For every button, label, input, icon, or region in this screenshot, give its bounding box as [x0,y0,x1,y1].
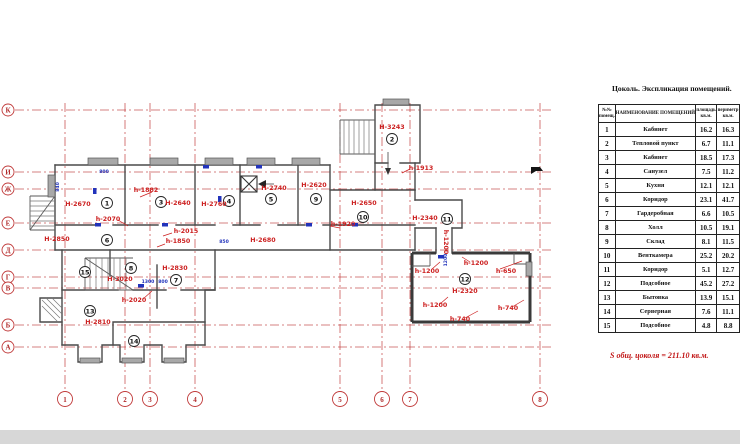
cell-a1: 6.6 [695,207,716,221]
cell-num: 6 [599,193,616,207]
table-row: 1Кабинет16.216.3 [599,123,740,137]
cell-a2: 10.5 [717,207,740,221]
table-row: 9Склад8.111.5 [599,235,740,249]
cell-a1: 13.9 [695,291,716,305]
grid-col-label: 4 [193,396,197,404]
height-label: h-1850 [166,238,191,245]
table-row: 12Подсобное45.227.2 [599,277,740,291]
height-label: h-1200 [464,260,489,267]
grid-row-label: И [5,168,11,176]
room-number: 9 [314,195,319,203]
total-area-note: S общ. цоколя = 211.10 кв.м. [610,351,709,360]
height-label: h-1913 [409,165,434,172]
cell-a2: 17.3 [717,151,740,165]
dimension-label: 850 [219,239,229,245]
height-label: h-1200 [423,302,448,309]
grid-row-label: Г [6,273,11,281]
cell-a1: 6.7 [695,137,716,151]
room-number: 11 [442,215,452,223]
cell-a1: 7.5 [695,165,716,179]
table-row: 8Холл10.519.1 [599,221,740,235]
room-number: 3 [159,198,164,206]
height-label: Н-2850 [44,236,70,243]
section-marker [531,167,543,174]
cell-a2: 11.5 [717,235,740,249]
cell-name: Подсобное [615,277,695,291]
cell-a1: 5.1 [695,263,716,277]
grid-row-label: В [6,284,11,292]
walls-stair-tower [340,105,420,190]
cell-num: 9 [599,235,616,249]
blue-door-markers [93,165,444,288]
header-room-name: НАИМЕНОВАНИЕ ПОМЕЩЕНИЙ [615,105,695,123]
cell-name: Холл [615,221,695,235]
height-label: Н-2340 [412,215,438,222]
cell-a1: 10.5 [695,221,716,235]
height-label: Н-3020 [107,276,133,283]
height-label: Н-3243 [379,124,404,131]
dimension-label: 1300 [142,279,155,285]
table-row: 3Кабинет18.517.3 [599,151,740,165]
dimension-label: 840 [55,182,61,192]
cell-a2: 19.1 [717,221,740,235]
cell-a2: 15.1 [717,291,740,305]
cell-num: 5 [599,179,616,193]
grid-row-label: Д [6,246,11,254]
cell-num: 13 [599,291,616,305]
height-label: h-2020 [122,297,147,304]
table-row: 2Тепловой пункт6.711.1 [599,137,740,151]
height-label: h-2070 [96,216,121,223]
height-label: Н-2680 [250,237,276,244]
room-number: 7 [174,276,179,284]
cell-num: 4 [599,165,616,179]
cell-name: Серверная [615,305,695,319]
cell-num: 2 [599,137,616,151]
cell-a2: 27.2 [717,277,740,291]
table-row: 11Коридор5.112.7 [599,263,740,277]
height-label: h-1882 [134,187,159,194]
grid-col-label: 8 [538,396,542,404]
height-label: h-2015 [174,228,199,235]
room-number: 8 [129,264,134,272]
cell-a2: 16.3 [717,123,740,137]
height-label: h-740 [450,316,471,323]
grid-rows: КИЖЕДГВБА [2,104,553,353]
room-number: 15 [80,268,90,276]
room-number: 5 [269,195,274,203]
grid-col-label: 3 [148,396,152,404]
height-label: h-1200 [415,268,440,275]
cell-num: 11 [599,263,616,277]
cell-name: Подсобное [615,319,695,333]
dimension-label: 1200 [443,254,449,267]
cell-num: 15 [599,319,616,333]
cell-name: Тепловой пункт [615,137,695,151]
cell-a1: 18.5 [695,151,716,165]
grid-col-label: 7 [408,396,412,404]
cell-name: Коридор [615,263,695,277]
room-number: 14 [129,337,139,345]
cell-a1: 16.2 [695,123,716,137]
cell-name: Коридор [615,193,695,207]
cell-num: 1 [599,123,616,137]
room-number: 10 [358,213,368,221]
height-label: Н-2670 [65,201,91,208]
cell-name: Санузел [615,165,695,179]
height-label: Н-2810 [85,319,111,326]
grid-col-label: 5 [338,396,342,404]
height-label: Н-2740 [261,185,287,192]
cell-name: Кабинет [615,151,695,165]
room-number: 12 [460,275,469,283]
cell-num: 8 [599,221,616,235]
height-label: Н-2620 [301,182,327,189]
table-row: 7Гардеробная6.610.5 [599,207,740,221]
cell-num: 14 [599,305,616,319]
cell-a2: 12.7 [717,263,740,277]
explication-table-head: №№ помещ. НАИМЕНОВАНИЕ ПОМЕЩЕНИЙ площадь… [599,105,740,123]
height-label: h-1920 [331,221,356,228]
cell-num: 10 [599,249,616,263]
cell-name: Гардеробная [615,207,695,221]
table-row: 14Серверная7.611.1 [599,305,740,319]
room-number: 13 [85,307,94,315]
cell-name: Кухня [615,179,695,193]
height-label: Н-2830 [162,265,188,272]
header-room-number: №№ помещ. [599,105,616,123]
grid-col-label: 2 [123,396,127,404]
explication-table: №№ помещ. НАИМЕНОВАНИЕ ПОМЕЩЕНИЙ площадь… [598,104,740,333]
cell-a2: 41.7 [717,193,740,207]
room-number: 2 [390,135,395,143]
cell-a1: 45.2 [695,277,716,291]
cell-a1: 8.1 [695,235,716,249]
table-row: 15Подсобное4.88.8 [599,319,740,333]
height-label: h-650 [496,268,517,275]
height-label: Н-2320 [452,288,478,295]
cell-a2: 11.1 [717,305,740,319]
cell-a1: 25.2 [695,249,716,263]
table-row: 5Кухня12.112.1 [599,179,740,193]
cell-a2: 12.1 [717,179,740,193]
table-row: 4Санузел7.511.2 [599,165,740,179]
height-label: h-1200 [442,230,449,255]
cell-a1: 7.6 [695,305,716,319]
cell-num: 3 [599,151,616,165]
dimension-label: 800 [99,169,109,175]
grid-row-label: Ж [5,185,12,193]
explication-table-body: 1Кабинет16.216.32Тепловой пункт6.711.13К… [599,123,740,333]
cell-a1: 4.8 [695,319,716,333]
grid-row-label: А [5,343,10,351]
table-row: 6Коридор23.141.7 [599,193,740,207]
cell-name: Венткамера [615,249,695,263]
cell-name: Кабинет [615,123,695,137]
height-label: Н-2650 [351,200,377,207]
cell-a2: 8.8 [717,319,740,333]
grid-col-label: 6 [380,396,384,404]
cell-a1: 23.1 [695,193,716,207]
cell-name: Склад [615,235,695,249]
grid-row-label: Б [6,321,11,329]
table-row: 10Венткамера25.220.2 [599,249,740,263]
table-title: Цоколь. Экспликация помещений. [612,84,740,93]
height-label: Н-2640 [165,200,191,207]
grid-col-label: 1 [63,396,67,404]
room-number: 1 [105,199,110,207]
header-perimeter: периметр кв.м. [717,105,740,123]
cell-a2: 11.1 [717,137,740,151]
cell-num: 7 [599,207,616,221]
room-number: 4 [227,197,232,205]
cell-a1: 12.1 [695,179,716,193]
grid-row-label: Е [6,219,11,227]
height-label: h-740 [498,305,519,312]
room-number: 6 [105,236,110,244]
cell-a2: 11.2 [717,165,740,179]
dimension-label: 800 [158,279,168,285]
cell-num: 12 [599,277,616,291]
height-label: Н-2760 [201,201,227,208]
header-area: площадь кв.м. [695,105,716,123]
table-row: 13Бытовка13.915.1 [599,291,740,305]
bottom-edge-strip [0,430,740,444]
cell-a2: 20.2 [717,249,740,263]
cell-name: Бытовка [615,291,695,305]
